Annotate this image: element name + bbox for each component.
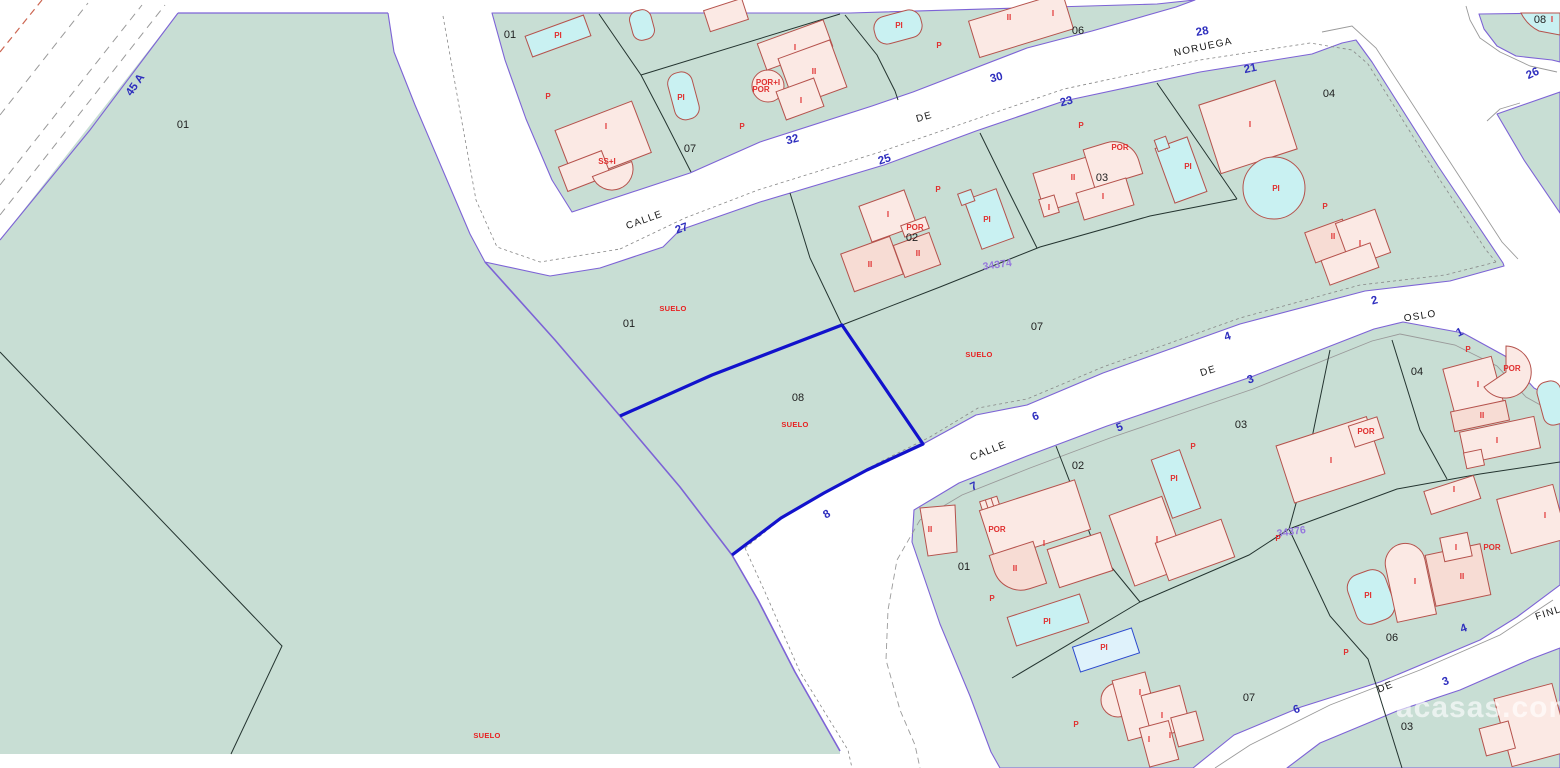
svg-text:II: II <box>1007 13 1011 22</box>
svg-text:08: 08 <box>792 392 804 404</box>
svg-text:PI: PI <box>1043 617 1051 626</box>
svg-text:SS+I: SS+I <box>598 157 616 166</box>
svg-text:01: 01 <box>623 318 635 330</box>
svg-text:03: 03 <box>1235 419 1247 431</box>
svg-text:01: 01 <box>504 29 516 41</box>
svg-text:P: P <box>1275 534 1281 543</box>
svg-text:PI: PI <box>1170 474 1178 483</box>
svg-text:I: I <box>1453 485 1455 494</box>
svg-text:P: P <box>1078 121 1084 130</box>
svg-text:08: 08 <box>1534 14 1546 26</box>
svg-text:I: I <box>1477 380 1479 389</box>
svg-text:P: P <box>1073 720 1079 729</box>
svg-text:PI: PI <box>1100 643 1108 652</box>
svg-text:01: 01 <box>177 119 189 131</box>
svg-text:P: P <box>935 185 941 194</box>
svg-text:POR: POR <box>1503 364 1521 373</box>
svg-text:POR: POR <box>906 223 924 232</box>
svg-text:POR: POR <box>988 525 1006 534</box>
svg-text:02: 02 <box>906 232 918 244</box>
svg-text:I: I <box>1455 543 1457 552</box>
svg-text:POR: POR <box>1483 543 1501 552</box>
svg-text:II: II <box>868 260 872 269</box>
svg-text:07: 07 <box>1031 321 1043 333</box>
svg-text:04: 04 <box>1411 366 1423 378</box>
svg-text:I: I <box>1052 9 1054 18</box>
svg-text:I: I <box>1156 535 1158 544</box>
svg-text:P: P <box>936 41 942 50</box>
svg-text:04: 04 <box>1323 88 1335 100</box>
svg-text:P: P <box>545 92 551 101</box>
svg-text:II: II <box>916 249 920 258</box>
svg-text:I: I <box>800 96 802 105</box>
svg-text:II: II <box>928 525 932 534</box>
svg-text:P: P <box>989 594 995 603</box>
svg-text:I: I <box>1048 203 1050 212</box>
svg-text:POR: POR <box>1111 143 1129 152</box>
svg-text:POR: POR <box>752 85 770 94</box>
svg-text:06: 06 <box>1386 632 1398 644</box>
svg-text:PI: PI <box>1364 591 1372 600</box>
svg-text:SUELO: SUELO <box>473 731 500 740</box>
svg-text:I: I <box>1544 511 1546 520</box>
svg-text:I: I <box>1169 731 1171 740</box>
svg-text:I: I <box>1249 120 1251 129</box>
svg-text:I: I <box>1139 688 1141 697</box>
svg-text:SUELO: SUELO <box>781 420 808 429</box>
svg-text:07: 07 <box>1243 692 1255 704</box>
svg-text:06: 06 <box>1072 25 1084 37</box>
svg-text:P: P <box>739 122 745 131</box>
svg-text:II: II <box>1013 564 1017 573</box>
svg-text:II: II <box>812 67 816 76</box>
svg-text:I: I <box>887 210 889 219</box>
svg-text:PI: PI <box>895 21 903 30</box>
svg-text:PI: PI <box>677 93 685 102</box>
svg-text:PI: PI <box>983 215 991 224</box>
svg-text:SUELO: SUELO <box>965 350 992 359</box>
svg-text:II: II <box>1480 411 1484 420</box>
svg-text:SUELO: SUELO <box>659 304 686 313</box>
svg-text:I: I <box>1102 192 1104 201</box>
svg-text:I: I <box>1551 15 1553 24</box>
svg-text:II: II <box>1460 572 1464 581</box>
svg-text:I: I <box>1330 456 1332 465</box>
svg-text:P: P <box>1322 202 1328 211</box>
svg-text:II: II <box>1071 173 1075 182</box>
svg-text:PI: PI <box>1272 184 1280 193</box>
svg-text:I: I <box>605 122 607 131</box>
svg-text:PI: PI <box>1184 162 1192 171</box>
svg-text:acasas.com: acasas.com <box>1396 691 1560 724</box>
svg-text:02: 02 <box>1072 460 1084 472</box>
svg-text:I: I <box>1148 735 1150 744</box>
svg-text:I: I <box>1414 577 1416 586</box>
svg-text:II: II <box>1331 232 1335 241</box>
svg-text:03: 03 <box>1096 172 1108 184</box>
svg-text:POR: POR <box>1357 427 1375 436</box>
svg-text:PI: PI <box>554 31 562 40</box>
svg-text:I: I <box>1043 539 1045 548</box>
svg-text:I: I <box>1161 711 1163 720</box>
svg-text:07: 07 <box>684 143 696 155</box>
svg-text:P: P <box>1190 442 1196 451</box>
svg-text:I: I <box>1359 239 1361 248</box>
svg-text:P: P <box>1465 345 1471 354</box>
svg-text:I: I <box>1496 436 1498 445</box>
svg-text:I: I <box>794 43 796 52</box>
svg-text:P: P <box>1343 648 1349 657</box>
svg-text:01: 01 <box>958 561 970 573</box>
